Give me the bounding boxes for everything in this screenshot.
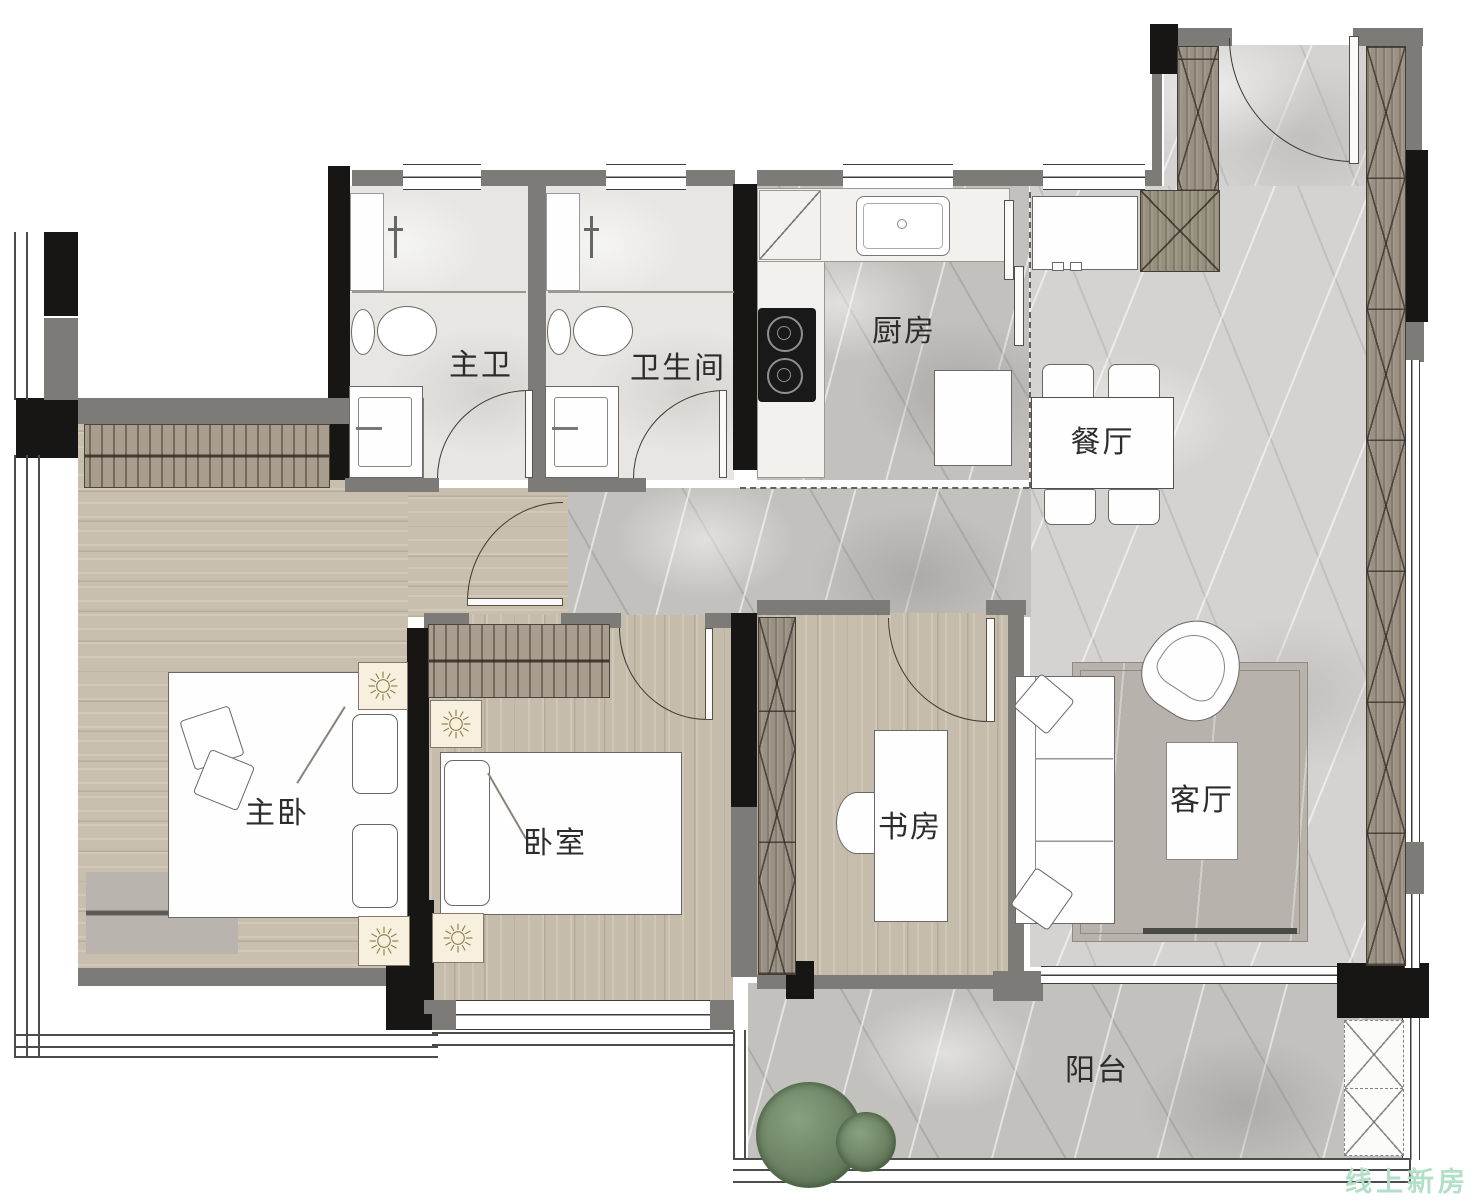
wall xyxy=(432,1002,456,1030)
shower-area xyxy=(350,193,384,291)
room-label-balcony: 阳台 xyxy=(1065,1056,1129,1086)
sink-icon xyxy=(349,386,423,478)
hallway-floor xyxy=(565,488,1031,617)
sliding-door-panel xyxy=(1014,266,1024,346)
burner-icon xyxy=(777,368,791,382)
dashed-x-icon xyxy=(1345,1021,1403,1088)
nightstand xyxy=(358,916,410,966)
study-bookshelf xyxy=(758,617,796,975)
dining-chair xyxy=(1044,489,1096,525)
shower-valve-icon xyxy=(394,216,397,258)
pillow xyxy=(352,714,398,794)
wall-column xyxy=(733,184,757,470)
desk-chair xyxy=(836,792,878,854)
fridge-icon xyxy=(934,370,1012,466)
window-line xyxy=(14,1056,438,1058)
wall xyxy=(1353,28,1423,46)
wall-column xyxy=(731,613,757,807)
railing-line xyxy=(744,1030,746,1160)
entry-door-leaf xyxy=(1349,36,1359,164)
room-label-kitchen: 厨房 xyxy=(872,317,936,347)
balcony-ac-cabinet xyxy=(1344,1020,1404,1156)
toilet-icon xyxy=(351,309,375,355)
entry-white-cabinet xyxy=(1032,196,1138,270)
faucet-icon xyxy=(356,427,382,430)
window xyxy=(1043,164,1145,190)
window-sill-line xyxy=(432,1044,735,1046)
drain-icon xyxy=(897,219,907,229)
nightstand xyxy=(430,700,482,748)
door-leaf xyxy=(525,390,533,478)
wall xyxy=(1404,46,1422,150)
window-line xyxy=(14,1046,438,1048)
wall xyxy=(528,478,646,492)
room-label-master-bath: 主卫 xyxy=(449,351,513,381)
window xyxy=(1404,894,1420,968)
armchair-cushion xyxy=(1150,622,1238,708)
wall-column xyxy=(1337,963,1429,1018)
sink-basin xyxy=(554,397,608,467)
shower-valve-icon xyxy=(584,228,599,231)
shower-valve-icon xyxy=(388,228,403,231)
pillow xyxy=(352,824,398,908)
shower-valve-icon xyxy=(590,216,593,258)
room-label-bathroom: 卫生间 xyxy=(630,354,726,384)
window-sill-line xyxy=(432,1032,735,1034)
dining-table: 餐厅 xyxy=(1031,397,1174,489)
window-line xyxy=(26,232,28,400)
sink-basin xyxy=(358,397,412,467)
entry-corner-cabinet xyxy=(1140,190,1220,272)
entry-shoe-cabinet xyxy=(1177,46,1219,192)
dining-chair xyxy=(1108,489,1160,525)
window xyxy=(403,164,481,190)
burner-icon xyxy=(767,358,803,394)
window xyxy=(1404,360,1420,842)
window xyxy=(1402,1018,1420,1160)
room-label-master-bedroom: 主卧 xyxy=(245,799,309,829)
wall xyxy=(345,478,439,492)
toilet-icon xyxy=(573,306,633,356)
rug-accent-line xyxy=(1143,928,1297,934)
wall xyxy=(44,318,78,400)
door-leaf xyxy=(719,390,727,478)
shower-area xyxy=(546,193,580,291)
wall xyxy=(993,971,1043,1001)
wall-column xyxy=(1406,150,1428,322)
toilet-icon xyxy=(547,309,571,355)
wall xyxy=(710,1002,734,1030)
room-label-dining: 餐厅 xyxy=(1071,428,1135,458)
window xyxy=(843,164,953,190)
lamp-sunburst-icon xyxy=(364,668,402,704)
window xyxy=(456,1000,710,1030)
cabinet-handle xyxy=(1070,262,1082,271)
kitchen-sink-icon xyxy=(856,196,950,256)
door-leaf xyxy=(986,618,995,722)
door-leaf xyxy=(705,628,713,720)
wall xyxy=(731,807,757,977)
shower-glass-line xyxy=(352,291,526,293)
window-line xyxy=(14,1034,438,1036)
dining-chair xyxy=(1108,364,1160,400)
faucet-icon xyxy=(552,427,578,430)
wardrobe-hangers-icon xyxy=(428,624,610,698)
window-line xyxy=(14,455,16,1058)
room-label-bedroom: 卧室 xyxy=(523,829,587,859)
wall xyxy=(1178,28,1232,46)
wall-column xyxy=(328,166,350,480)
nightstand xyxy=(358,662,408,710)
floor-plan: 主卫 卫生间 厨房 餐厅 xyxy=(0,0,1475,1203)
wall-column xyxy=(16,398,78,458)
wardrobe-hangers-icon xyxy=(84,424,330,488)
lamp-sunburst-icon xyxy=(365,923,403,959)
tv-wall-storage-cabinet xyxy=(1366,46,1406,966)
railing-line xyxy=(733,1030,735,1160)
wall-column xyxy=(407,628,429,904)
window xyxy=(606,164,686,190)
burner-icon xyxy=(767,316,803,352)
kitchen-opening-dashed-line xyxy=(740,487,1029,489)
door-leaf xyxy=(467,598,563,606)
dashed-x-icon xyxy=(1345,1088,1403,1155)
lamp-sunburst-icon xyxy=(437,706,475,742)
wall xyxy=(705,613,733,628)
toilet-icon xyxy=(377,306,437,356)
nightstand xyxy=(432,913,484,963)
wall-column xyxy=(44,232,78,316)
watermark: 线上新房 xyxy=(1345,1160,1469,1199)
burner-icon xyxy=(777,326,791,340)
dining-chair xyxy=(1042,364,1094,400)
coffee-table: 客厅 xyxy=(1166,742,1238,860)
window-line xyxy=(26,455,28,1058)
lamp-sunburst-icon xyxy=(439,920,477,956)
window-line xyxy=(38,455,40,1058)
pillow xyxy=(444,760,490,906)
sliding-window xyxy=(1041,966,1339,984)
wall xyxy=(757,600,890,615)
wall xyxy=(78,968,390,986)
window-line xyxy=(14,232,16,400)
room-label-study: 书房 xyxy=(878,813,942,843)
wall xyxy=(1152,74,1162,186)
corner-cabinet xyxy=(759,190,821,260)
sliding-door-panel xyxy=(1004,200,1014,280)
wall xyxy=(1404,322,1424,362)
sink-icon xyxy=(545,386,619,478)
plant-icon xyxy=(836,1112,896,1172)
wall-column xyxy=(1150,24,1178,74)
shower-glass-line xyxy=(548,291,734,293)
stove-icon xyxy=(758,308,816,402)
cabinet-handle xyxy=(1052,262,1064,271)
room-label-living: 客厅 xyxy=(1170,786,1234,816)
